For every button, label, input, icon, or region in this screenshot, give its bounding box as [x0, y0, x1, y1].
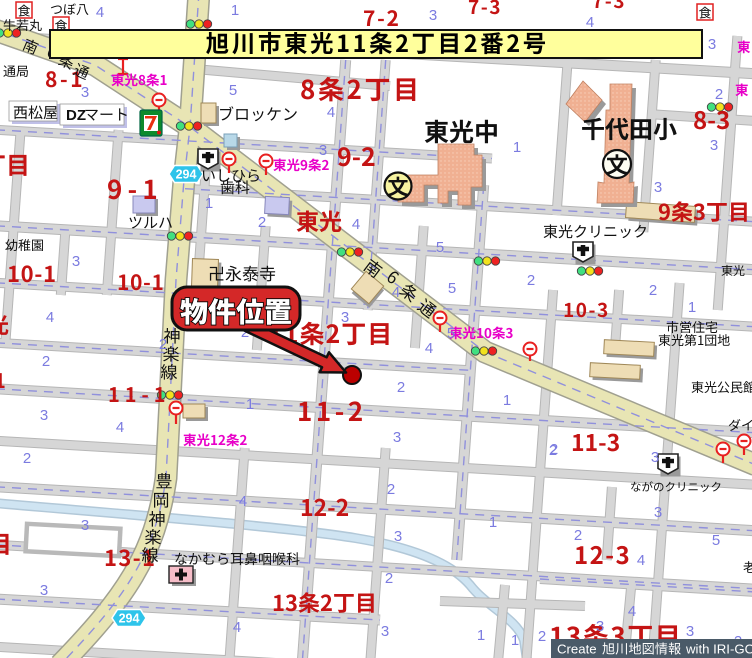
svg-text:4: 4 — [637, 552, 645, 569]
svg-text:294: 294 — [119, 612, 140, 626]
svg-text:3: 3 — [654, 179, 662, 196]
svg-text:1: 1 — [205, 195, 213, 212]
svg-text:5: 5 — [448, 280, 456, 297]
svg-text:4: 4 — [116, 419, 124, 436]
svg-text:5: 5 — [447, 325, 455, 342]
svg-text:4: 4 — [327, 104, 335, 121]
svg-text:3: 3 — [708, 36, 716, 53]
svg-text:1: 1 — [688, 299, 696, 316]
svg-text:2: 2 — [549, 442, 557, 459]
svg-text:2: 2 — [387, 481, 395, 498]
svg-text:3: 3 — [40, 582, 48, 599]
svg-text:3: 3 — [393, 429, 401, 446]
svg-text:2: 2 — [397, 379, 405, 396]
svg-text:4: 4 — [96, 4, 104, 21]
svg-text:2: 2 — [715, 86, 723, 103]
svg-text:3: 3 — [81, 517, 89, 534]
svg-text:3: 3 — [686, 623, 694, 640]
svg-text:3: 3 — [81, 84, 89, 101]
svg-text:3: 3 — [40, 407, 48, 424]
svg-text:1: 1 — [511, 632, 519, 649]
svg-text:2: 2 — [159, 336, 167, 353]
svg-text:2: 2 — [527, 272, 535, 289]
svg-text:5: 5 — [712, 532, 720, 549]
svg-text:1: 1 — [503, 392, 511, 409]
svg-text:3: 3 — [381, 623, 389, 640]
svg-text:3: 3 — [394, 528, 402, 545]
svg-text:2: 2 — [574, 527, 582, 544]
svg-text:with IRI-GO: with IRI-GO — [685, 642, 752, 657]
svg-text:2: 2 — [385, 570, 393, 587]
svg-text:4: 4 — [352, 216, 360, 233]
svg-text:294: 294 — [176, 168, 197, 182]
svg-text:1: 1 — [477, 627, 485, 644]
svg-text:4: 4 — [46, 309, 54, 326]
svg-text:5: 5 — [229, 82, 237, 99]
svg-text:3: 3 — [596, 618, 604, 635]
svg-text:1: 1 — [246, 396, 254, 413]
svg-text:2: 2 — [23, 450, 31, 467]
svg-text:DZ: DZ — [66, 107, 86, 124]
svg-text:4: 4 — [628, 603, 636, 620]
svg-text:3: 3 — [429, 7, 437, 24]
svg-text:4: 4 — [239, 493, 247, 510]
svg-text:4: 4 — [425, 340, 433, 357]
svg-text:1: 1 — [513, 139, 521, 156]
svg-text:4: 4 — [392, 284, 400, 301]
svg-text:3: 3 — [710, 137, 718, 154]
svg-text:3: 3 — [72, 253, 80, 270]
svg-text:2: 2 — [258, 214, 266, 231]
svg-text:3: 3 — [654, 504, 662, 521]
svg-text:2: 2 — [538, 628, 546, 645]
svg-text:4: 4 — [233, 619, 241, 636]
svg-text:1: 1 — [231, 2, 239, 19]
svg-text:Create: Create — [557, 642, 597, 657]
svg-text:3: 3 — [319, 142, 327, 159]
svg-text:3: 3 — [651, 449, 659, 466]
svg-text:5: 5 — [436, 239, 444, 256]
svg-text:4: 4 — [586, 14, 594, 31]
svg-text:2: 2 — [649, 282, 657, 299]
svg-text:2: 2 — [42, 353, 50, 370]
svg-text:3: 3 — [341, 309, 349, 326]
svg-text:1: 1 — [489, 514, 497, 531]
